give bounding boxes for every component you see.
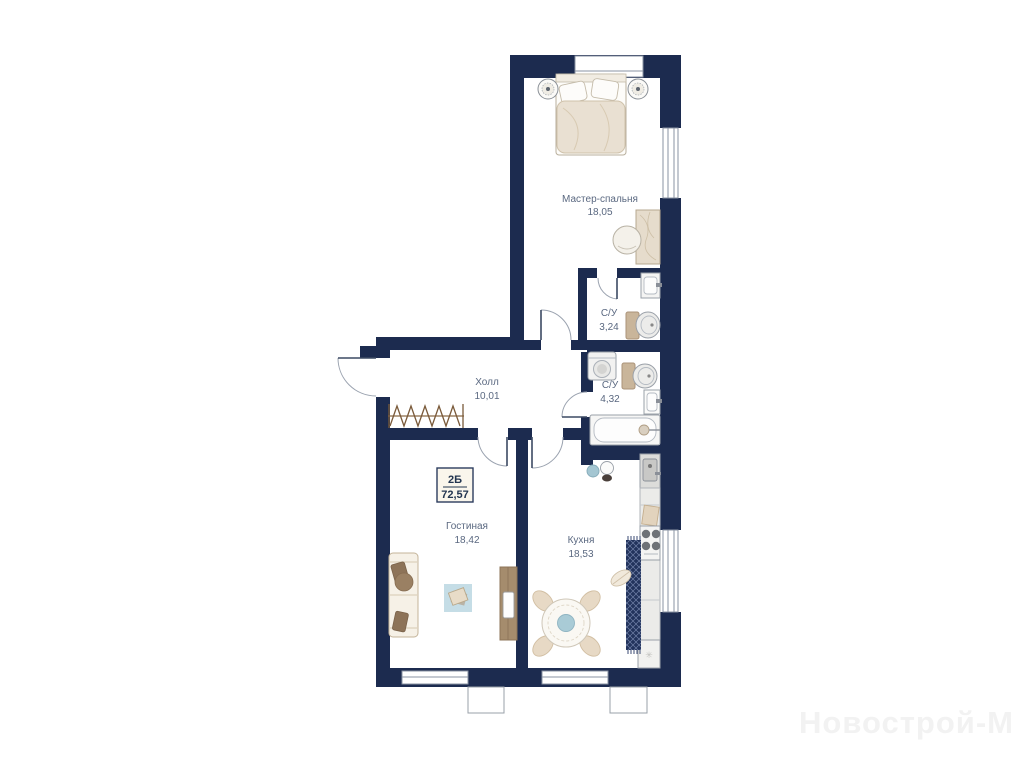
room-area-hall: 10,01 xyxy=(474,391,499,402)
table-centerpiece xyxy=(558,615,575,632)
kettle xyxy=(601,462,614,475)
sofa-pillow xyxy=(395,573,413,591)
wall-segment xyxy=(578,268,597,278)
badge-unit-area: 72,57 xyxy=(441,489,469,501)
kettle-base xyxy=(602,475,612,482)
burner xyxy=(642,542,650,550)
room-label-bathroom-1: С/У xyxy=(601,308,618,319)
plant-center xyxy=(636,87,640,91)
room-label-kitchen: Кухня xyxy=(568,535,595,546)
window-glass xyxy=(663,128,678,198)
room-label-hall: Холл xyxy=(475,377,499,388)
door-entrance xyxy=(338,358,376,396)
wall-segment xyxy=(376,350,390,358)
sink-tap xyxy=(655,472,661,475)
toilet xyxy=(622,363,657,389)
wall-segment xyxy=(578,278,587,350)
window-bedroom-right xyxy=(663,128,678,198)
room-area-bathroom-2: 4,32 xyxy=(600,394,620,405)
tv xyxy=(503,592,514,618)
floor-plan-page: ✳ Мастер-спальня 18,05 С/У xyxy=(0,0,1024,768)
wall-segment xyxy=(524,340,541,350)
nightstand xyxy=(538,79,558,99)
burner xyxy=(642,530,650,538)
wall-segment xyxy=(660,198,681,530)
kitchen-sink xyxy=(640,454,661,488)
washer-door-inner xyxy=(597,364,607,374)
fridge: ✳ xyxy=(638,640,660,668)
bed-headboard xyxy=(556,74,626,82)
washing-machine xyxy=(588,352,616,380)
bed-blanket xyxy=(557,101,625,153)
sink-basin xyxy=(644,277,657,294)
toilet-drain xyxy=(650,323,653,326)
bathtub xyxy=(590,415,660,445)
burner xyxy=(652,530,660,538)
stove xyxy=(640,526,660,560)
window-glass xyxy=(663,530,678,612)
snowflake-icon: ✳ xyxy=(645,651,653,661)
decor-bowl xyxy=(587,465,599,477)
room-area-master-bedroom: 18,05 xyxy=(587,207,612,218)
wall-segment xyxy=(360,346,376,358)
wall-segment xyxy=(587,340,660,352)
toilet xyxy=(626,312,660,339)
bed xyxy=(556,74,626,155)
door-arc xyxy=(338,358,376,396)
floor-plan-svg: ✳ Мастер-спальня 18,05 С/У xyxy=(0,0,1024,768)
sink-tap xyxy=(656,399,662,403)
ac-unit xyxy=(468,687,504,713)
toilet-drain xyxy=(647,374,650,377)
room-area-kitchen: 18,53 xyxy=(568,549,593,560)
kitchen-counter xyxy=(640,488,660,640)
burner xyxy=(652,542,660,550)
room-area-living-room: 18,42 xyxy=(454,535,479,546)
bathroom-sink xyxy=(644,390,662,414)
wall-segment xyxy=(376,397,390,687)
window-living-bottom xyxy=(402,671,468,684)
bathtub-drain xyxy=(639,425,649,435)
pouf-seat xyxy=(613,226,641,254)
room-area-bathroom-1: 3,24 xyxy=(599,322,619,333)
sink-basin xyxy=(647,393,657,411)
sink-basin xyxy=(643,459,657,481)
cutting-board xyxy=(642,505,659,526)
wall-segment xyxy=(571,340,587,350)
wall-segment xyxy=(510,55,524,350)
unit-badge: 2Б 72,57 xyxy=(437,468,473,502)
bed-pillow xyxy=(591,78,620,101)
sink-drain xyxy=(648,464,652,468)
plant-center xyxy=(546,87,550,91)
area-rug xyxy=(444,584,472,612)
room-label-bathroom-2: С/У xyxy=(602,380,619,391)
wall-segment xyxy=(660,55,681,128)
runner-rug xyxy=(626,536,641,654)
watermark: Новострой-М xyxy=(799,705,1014,741)
bathroom-sink xyxy=(641,273,662,298)
wall-segment xyxy=(376,337,524,350)
wall-segment xyxy=(516,437,528,683)
room-label-living-room: Гостиная xyxy=(446,521,488,532)
badge-unit-type: 2Б xyxy=(448,474,462,486)
window-kitchen-right xyxy=(663,530,678,612)
pouf-chair xyxy=(613,226,641,254)
wall-segment xyxy=(563,428,593,440)
window-kitchen-bottom xyxy=(542,671,608,684)
tv-console xyxy=(500,567,517,640)
sofa xyxy=(389,553,418,637)
room-label-master-bedroom: Мастер-спальня xyxy=(562,194,638,205)
runner-pattern xyxy=(626,540,641,650)
wall-segment xyxy=(390,428,478,440)
sink-tap xyxy=(656,283,662,287)
ac-unit xyxy=(610,687,647,713)
nightstand xyxy=(628,79,648,99)
